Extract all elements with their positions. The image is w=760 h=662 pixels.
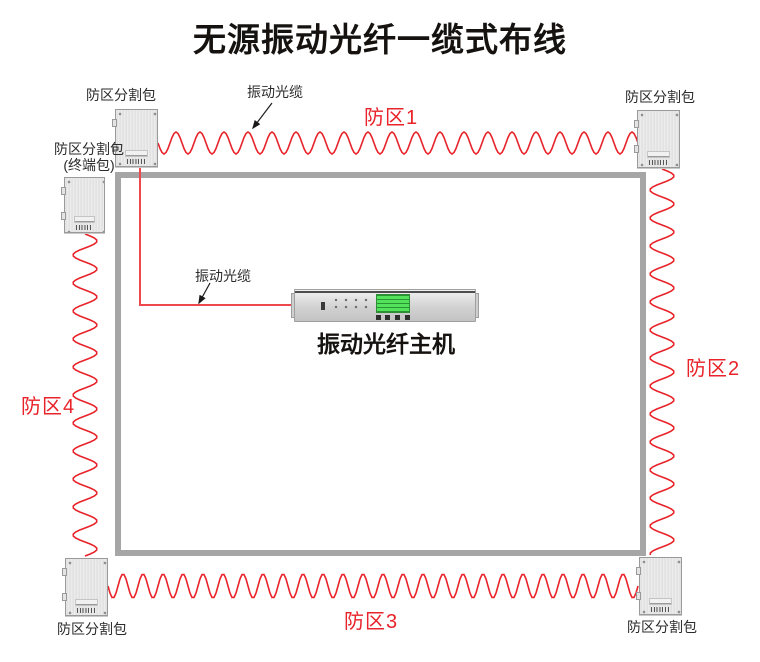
- host-top-trim: [295, 291, 475, 293]
- zone-splitter-box-bottom-left: [65, 558, 108, 616]
- label-terminal-splitter-line1: 防区分割包: [50, 141, 128, 157]
- label-splitter-top-right: 防区分割包: [625, 89, 695, 105]
- zone3-fiber-wave: [108, 575, 638, 598]
- host-feed-cable: [140, 167, 295, 305]
- host-device: [294, 289, 476, 322]
- zone-splitter-box-top-right: [637, 110, 680, 168]
- zone1-fiber-wave: [158, 132, 638, 154]
- label-vibration-cable-top: 振动光缆: [247, 84, 303, 100]
- control-buttons: [376, 315, 410, 320]
- led-indicators: [333, 298, 369, 310]
- lcd-screen: [376, 294, 410, 313]
- host-rack-ear-left: [291, 293, 295, 318]
- zone4-fiber-wave: [73, 234, 96, 556]
- label-splitter-top-left: 防区分割包: [86, 87, 156, 103]
- label-zone3: 防区3: [344, 605, 398, 634]
- zone-splitter-box-bottom-right: [639, 557, 682, 615]
- label-splitter-bottom-left: 防区分割包: [57, 621, 127, 637]
- host-rack-ear-right: [475, 293, 479, 318]
- power-switch-icon: [321, 302, 325, 310]
- wiring-diagram: 无源振动光纤一缆式布线: [0, 0, 760, 662]
- label-host: 振动光纤主机: [288, 325, 484, 359]
- label-vibration-cable-host: 振动光缆: [195, 268, 251, 284]
- label-splitter-bottom-right: 防区分割包: [627, 619, 697, 635]
- zone2-fiber-wave: [650, 169, 673, 555]
- label-terminal-splitter-line2: (终端包): [50, 157, 128, 173]
- label-zone4: 防区4: [21, 390, 75, 419]
- label-terminal-splitter: 防区分割包 (终端包): [50, 141, 128, 173]
- arrow-icon-cable-top: [253, 103, 272, 128]
- arrow-icon-cable-host: [199, 283, 210, 303]
- label-zone2: 防区2: [686, 352, 740, 381]
- terminal-splitter-box: [64, 177, 105, 233]
- label-zone1: 防区1: [364, 101, 418, 130]
